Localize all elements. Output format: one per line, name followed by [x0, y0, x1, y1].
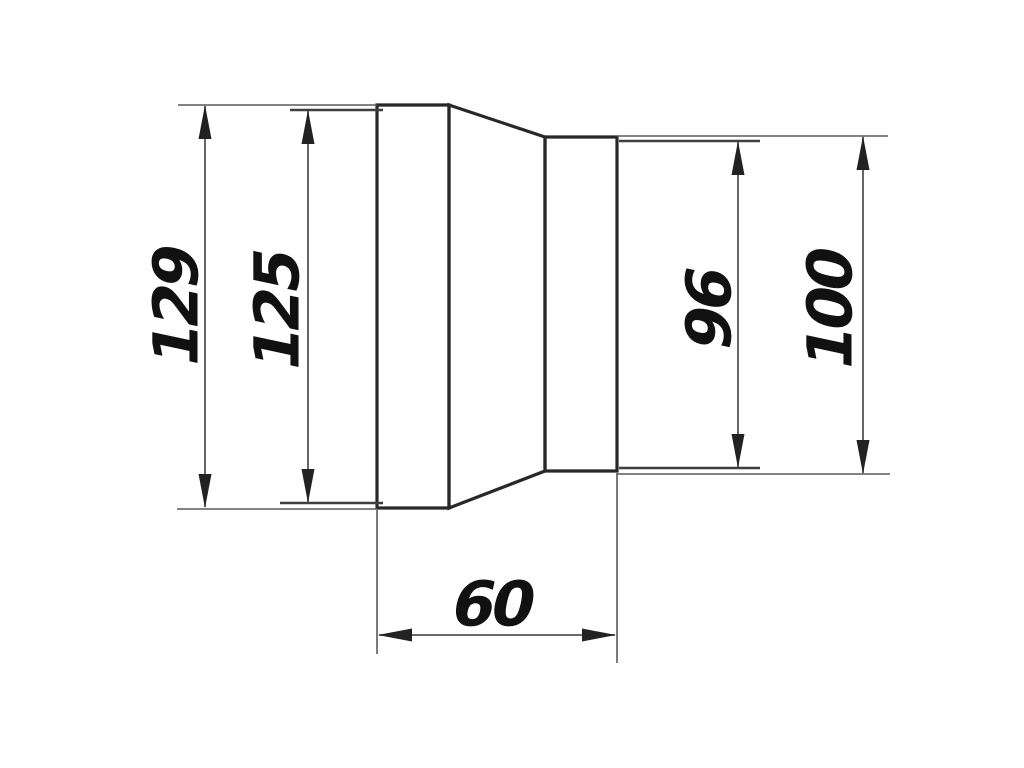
- arrowhead-96-bottom: [732, 434, 745, 468]
- dimension-label-100: 100: [794, 242, 866, 376]
- dimension-label-60: 60: [445, 568, 540, 640]
- arrowhead-129-bottom: [199, 474, 212, 508]
- arrowhead-96-top: [732, 141, 745, 175]
- arrowhead-60-right: [582, 629, 616, 642]
- drawing-canvas: 129 125 96 100 60: [0, 0, 1024, 768]
- arrowhead-125-top: [302, 110, 315, 144]
- dimension-label-129: 129: [140, 240, 212, 373]
- arrowhead-100-bottom: [857, 440, 870, 474]
- reducer-outlet-outline: [545, 137, 617, 471]
- arrowhead-125-bottom: [302, 469, 315, 503]
- reducer-flange-outline: [377, 105, 449, 508]
- dimension-label-96: 96: [673, 262, 745, 357]
- arrowhead-100-top: [857, 136, 870, 170]
- arrowhead-129-top: [199, 105, 212, 139]
- reducer-dimension-drawing: 129 125 96 100 60: [0, 0, 1024, 768]
- dimension-label-125: 125: [241, 244, 313, 377]
- reducer-cone-outline: [449, 105, 545, 508]
- arrowhead-60-left: [378, 629, 412, 642]
